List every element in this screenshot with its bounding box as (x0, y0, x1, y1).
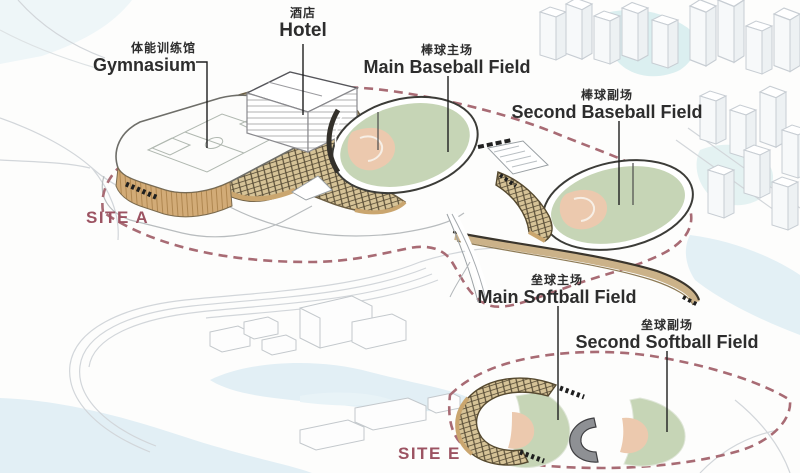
label-hotel-zh: 酒店 (243, 7, 363, 20)
label-second-softball-zh: 垒球副场 (567, 319, 767, 332)
label-main-baseball-field: 棒球主场 Main Baseball Field (357, 44, 537, 78)
label-main-softball-field: 垒球主场 Main Softball Field (467, 274, 647, 308)
label-main-softball-en: Main Softball Field (467, 287, 647, 307)
label-main-softball-zh: 垒球主场 (467, 274, 647, 287)
bleacher-stand (478, 140, 548, 174)
label-second-baseball-field: 棒球副场 Second Baseball Field (507, 89, 707, 123)
label-second-softball-en: Second Softball Field (567, 332, 767, 352)
label-gymnasium-en: Gymnasium (56, 55, 196, 75)
label-hotel: 酒店 Hotel (243, 7, 363, 42)
label-second-baseball-en: Second Baseball Field (507, 102, 707, 122)
site-e-label: SITE E (398, 444, 461, 464)
label-gymnasium-zh: 体能训练馆 (56, 42, 196, 55)
second-softball-field (570, 398, 685, 466)
label-main-baseball-zh: 棒球主场 (357, 44, 537, 57)
label-gymnasium: 体能训练馆 Gymnasium (56, 42, 196, 76)
label-main-baseball-en: Main Baseball Field (357, 57, 537, 77)
label-hotel-en: Hotel (243, 20, 363, 41)
label-second-softball-field: 垒球副场 Second Softball Field (567, 319, 767, 353)
site-a-label: SITE A (86, 208, 149, 228)
label-second-baseball-zh: 棒球副场 (507, 89, 707, 102)
site-plan-diagram: 体能训练馆 Gymnasium 酒店 Hotel 棒球主场 Main Baseb… (0, 0, 800, 473)
main-softball-field (457, 378, 584, 467)
